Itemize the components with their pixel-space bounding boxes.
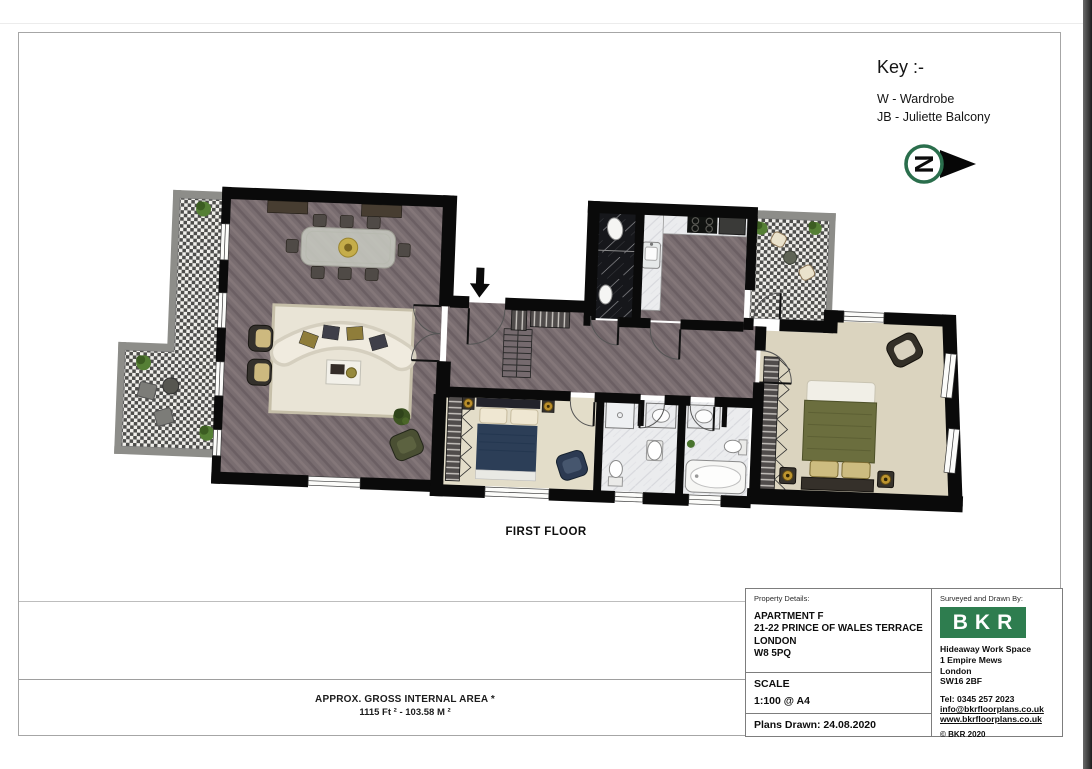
armchair	[248, 325, 273, 352]
surveyor-address-line: SW16 2BF	[940, 676, 1054, 687]
surveyed-by-label: Surveyed and Drawn By:	[940, 594, 1054, 603]
divider	[19, 601, 745, 602]
nightstand	[779, 467, 796, 484]
toilet	[599, 285, 613, 304]
divider	[19, 679, 745, 680]
surveyor-address-line: 1 Empire Mews	[940, 655, 1054, 666]
hob	[687, 216, 718, 234]
coffee-table	[326, 360, 361, 385]
living-room	[219, 198, 445, 481]
property-address-line: 21-22 PRINCE OF WALES TERRACE	[754, 623, 923, 635]
page-edge-line	[0, 23, 1092, 24]
nightstand	[542, 400, 554, 412]
plans-drawn-date: Plans Drawn: 24.08.2020	[754, 719, 876, 731]
key-title: Key :-	[877, 57, 990, 78]
key-legend: Key :- W - Wardrobe JB - Juliette Balcon…	[877, 57, 990, 126]
key-item-juliette-balcony: JB - Juliette Balcony	[877, 108, 990, 126]
plans-drawn-cell: Plans Drawn: 24.08.2020	[746, 714, 931, 736]
surveyor-address-line: Hideaway Work Space	[940, 644, 1054, 655]
shower-tray	[605, 402, 634, 429]
armchair	[247, 359, 272, 386]
terrace-table	[783, 251, 796, 264]
toilet	[608, 460, 623, 486]
floor-title: FIRST FLOOR	[0, 526, 1092, 538]
nightstand	[462, 397, 474, 409]
surveyor-email-link[interactable]: info@bkrfloorplans.co.uk	[940, 704, 1054, 714]
bathroom-2	[683, 402, 750, 496]
north-arrow-triangle	[940, 150, 976, 178]
master-bedroom	[755, 319, 960, 508]
copyright-note: © BKR 2020	[940, 730, 1054, 739]
key-item-wardrobe: W - Wardrobe	[877, 90, 990, 108]
title-block: Property Details: APARTMENT F 21-22 PRIN…	[745, 588, 1063, 737]
bkr-logo: BKR	[940, 607, 1026, 638]
basin	[695, 410, 712, 424]
entrance-arrow-icon	[469, 267, 490, 298]
right-edge-strip	[1083, 0, 1092, 769]
surveyor-phone: Tel: 0345 257 2023	[940, 694, 1054, 704]
area-value: 1115 Ft ² - 103.58 M ²	[85, 707, 725, 718]
property-details-column: Property Details: APARTMENT F 21-22 PRIN…	[746, 589, 932, 736]
terrace-right	[746, 210, 836, 323]
bed-2	[473, 398, 540, 481]
floorplan-page: Key :- W - Wardrobe JB - Juliette Balcon…	[0, 0, 1092, 769]
property-address-line: LONDON	[754, 636, 923, 648]
bathtub	[685, 460, 746, 494]
property-address-line: APARTMENT F	[754, 611, 923, 623]
wardrobe	[445, 397, 462, 481]
scale-value: 1:100 @ A4	[754, 693, 923, 710]
terrace-table	[162, 378, 179, 395]
sink	[642, 242, 661, 269]
floor-plan	[95, 178, 975, 528]
surveyor-address-line: London	[940, 666, 1054, 677]
hall-closet	[511, 310, 527, 331]
property-details-label: Property Details:	[754, 594, 923, 603]
north-letter: N	[909, 155, 939, 174]
hall-closet	[530, 311, 570, 328]
area-title: APPROX. GROSS INTERNAL AREA *	[85, 694, 725, 705]
stairs	[502, 329, 532, 378]
pedestal-basin	[646, 440, 663, 461]
window-seat	[361, 204, 401, 218]
bedroom-2	[441, 392, 596, 490]
scale-cell: SCALE 1:100 @ A4	[746, 673, 931, 714]
window-seat	[267, 200, 307, 214]
property-details-cell: Property Details: APARTMENT F 21-22 PRIN…	[746, 589, 931, 673]
scale-label: SCALE	[754, 676, 923, 693]
kitchen	[638, 212, 748, 324]
nightstand	[877, 471, 894, 488]
surveyor-column: Surveyed and Drawn By: BKR Hideaway Work…	[932, 589, 1062, 736]
property-address-line: W8 5PQ	[754, 648, 923, 660]
gross-internal-area: APPROX. GROSS INTERNAL AREA * 1115 Ft ² …	[85, 694, 725, 718]
kitchen-appliance	[719, 217, 746, 235]
surveyor-website-link[interactable]: www.bkrfloorplans.co.uk	[940, 714, 1054, 724]
